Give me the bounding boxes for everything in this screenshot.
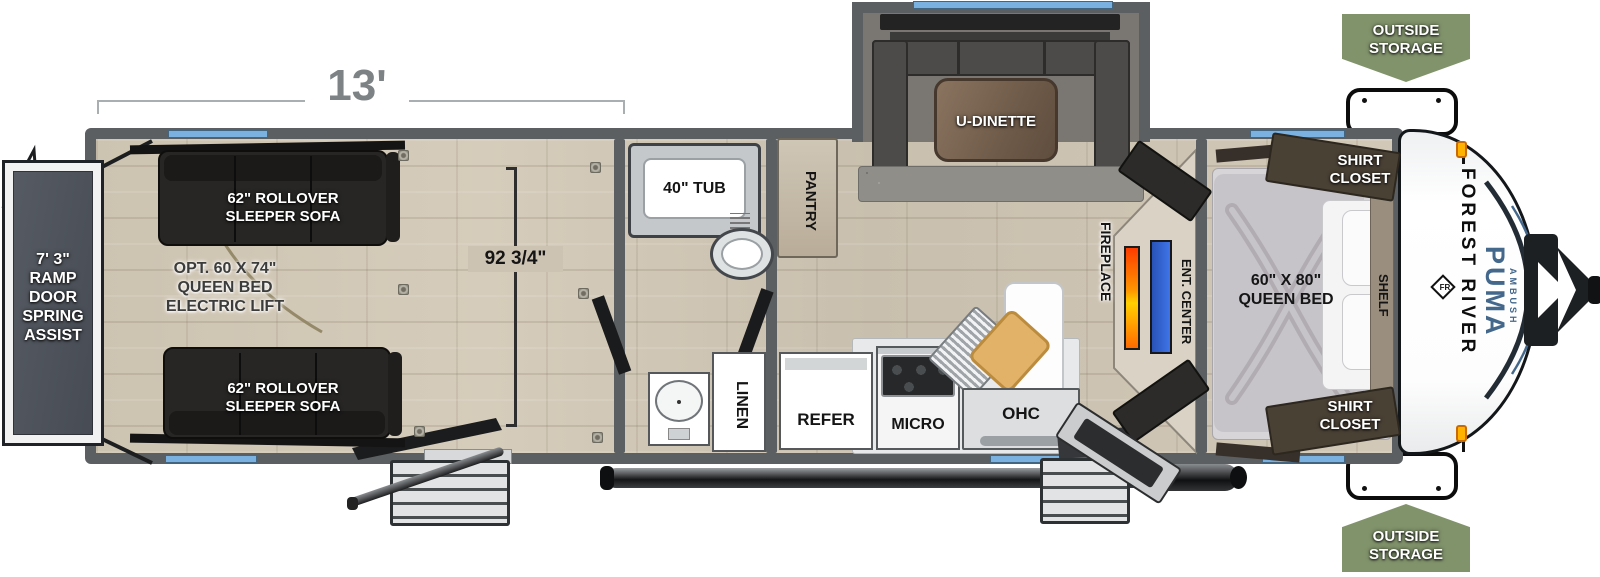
bath-vanity [648, 372, 710, 446]
sofa-backrest [164, 155, 382, 181]
dimension-tick-right [623, 100, 625, 114]
sofa-armrest-top [386, 152, 400, 242]
sofa-armrest-bottom [388, 352, 402, 436]
marker-light-bottom [1456, 425, 1467, 442]
brand-logo-text: FR [1437, 283, 1453, 295]
ramp-door-label-line2: RAMP DOOR [5, 270, 101, 308]
micro-label: MICRO [878, 416, 958, 435]
shirt-closet-bottom-line2: CLOSET [1308, 416, 1392, 434]
opt-bed-label: OPT. 60 X 74" QUEEN BED ELECTRIC LIFT [150, 260, 300, 317]
sofa-top-label-line2: SLEEPER SOFA [203, 208, 363, 226]
linen-cabinet: LINEN [712, 352, 766, 452]
refer-label: REFER [781, 410, 871, 430]
shirt-closet-top-line2: CLOSET [1318, 170, 1402, 188]
awning-end-cap-right [1230, 466, 1247, 489]
tie-down-ring [578, 288, 589, 299]
opt-bed-label-line2: QUEEN BED [150, 279, 300, 298]
bathtub-faucet [730, 213, 750, 229]
wall-garage-bath [614, 139, 625, 453]
pantry-cabinet: PANTRY [777, 138, 838, 258]
floorplan-canvas: 13' OUTSIDE STORAGE OUTSIDE STORAGE FORE… [0, 0, 1600, 577]
brand-series-text: AMBUSH [1506, 268, 1518, 358]
refrigerator-top [785, 358, 867, 370]
ramp-door-label-line3: SPRING [5, 308, 101, 327]
dimension-line-left [97, 100, 305, 102]
garage-width-label: 92 3/4" [468, 246, 563, 272]
ramp-door: 7' 3" RAMP DOOR SPRING ASSIST [2, 160, 104, 446]
tie-down-ring [590, 162, 601, 173]
linen-label: LINEN [730, 366, 750, 444]
storage-box-screw [1362, 486, 1367, 491]
hitch-a-frame-cutout [1538, 262, 1566, 318]
ohc-handle [980, 436, 1065, 446]
ramp-door-label-line1: 7' 3" [5, 251, 101, 270]
tv-screen [1150, 240, 1172, 354]
storage-box-screw [1362, 98, 1367, 103]
storage-box-screw [1436, 486, 1441, 491]
shelf-label: SHELF [1375, 255, 1391, 335]
sofa-bottom-label-line1: 62" ROLLOVER [203, 380, 363, 398]
awning-end-cap-left [600, 466, 614, 490]
ramp-door-label-line4: ASSIST [5, 327, 101, 346]
window-slideout [913, 1, 1113, 9]
hitch-a-frame [1556, 246, 1592, 334]
queen-bed-label-line1: 60" X 80" [1216, 272, 1356, 291]
queen-bed-label-line2: QUEEN BED [1216, 291, 1356, 310]
outside-storage-label-line1: OUTSIDE [1373, 528, 1440, 546]
outside-storage-label-line1: OUTSIDE [1373, 22, 1440, 40]
window-garage-top [168, 130, 268, 138]
garage-width-bracket-tick-bottom [506, 424, 517, 427]
storage-box-screw [1436, 98, 1441, 103]
refrigerator: REFER [779, 352, 873, 450]
opt-bed-label-line3: ELECTRIC LIFT [150, 298, 300, 317]
tie-down-ring [398, 284, 409, 295]
dinette-bench-back [872, 40, 1130, 76]
dimension-tick-left [97, 100, 99, 114]
tie-down-ring [414, 426, 425, 437]
ent-center-label: ENT. CENTER [1174, 238, 1194, 366]
opt-bed-label-line1: OPT. 60 X 74" [150, 260, 300, 279]
ramp-door-label: 7' 3" RAMP DOOR SPRING ASSIST [5, 251, 101, 345]
fireplace-insert [1124, 246, 1140, 350]
sofa-bottom-label-line2: SLEEPER SOFA [203, 398, 363, 416]
u-dinette-label: U-DINETTE [937, 113, 1055, 131]
shirt-closet-bottom-label: SHIRT CLOSET [1308, 398, 1392, 433]
pantry-label: PANTRY [799, 158, 819, 244]
queen-bed-label: 60" X 80" QUEEN BED [1216, 272, 1356, 310]
toilet-seat [721, 238, 763, 270]
garage-width-bracket-tick-top [506, 167, 517, 170]
toilet [710, 228, 774, 280]
bathtub: 40" TUB [628, 143, 761, 238]
outside-storage-badge-bottom: OUTSIDE STORAGE [1342, 504, 1470, 572]
bath-faucet [668, 428, 690, 440]
tie-down-ring [398, 150, 409, 161]
shirt-closet-top-line1: SHIRT [1318, 152, 1402, 170]
dimension-garage-length-label: 13' [307, 58, 407, 116]
slideout-top-bar [880, 14, 1120, 30]
brand-maker-text: FOREST RIVER [1450, 168, 1478, 428]
bed-shelf: SHELF [1370, 190, 1394, 400]
garage-width-bracket-line [514, 167, 517, 427]
outside-storage-label-line2: STORAGE [1369, 40, 1443, 58]
bath-sink-drain [677, 400, 681, 404]
sofa-top-label: 62" ROLLOVER SLEEPER SOFA [203, 190, 363, 225]
dimension-line-right [409, 100, 625, 102]
sofa-top-label-line1: 62" ROLLOVER [203, 190, 363, 208]
shirt-closet-top-label: SHIRT CLOSET [1318, 152, 1402, 187]
hitch-coupler [1588, 276, 1600, 304]
dinette-bench-right [1094, 40, 1130, 172]
dimension-garage-length: 13' [97, 58, 625, 116]
sofa-bottom-label: 62" ROLLOVER SLEEPER SOFA [203, 380, 363, 415]
fireplace-label: FIREPLACE [1094, 178, 1114, 346]
shirt-closet-bottom-line1: SHIRT [1308, 398, 1392, 416]
outside-storage-label-line2: STORAGE [1369, 546, 1443, 564]
outside-storage-badge-top: OUTSIDE STORAGE [1342, 14, 1470, 82]
ohc-label: OHC [964, 404, 1078, 424]
slideout-top-bar-2 [890, 32, 1110, 40]
tie-down-ring [592, 432, 603, 443]
tub-label: 40" TUB [631, 180, 758, 199]
dinette-bench-left [872, 40, 908, 172]
dinette-table: U-DINETTE [934, 78, 1058, 162]
entry-steps-1-handrail-end [347, 497, 358, 510]
marker-light-top [1456, 141, 1467, 158]
window-garage-bottom [165, 455, 257, 463]
